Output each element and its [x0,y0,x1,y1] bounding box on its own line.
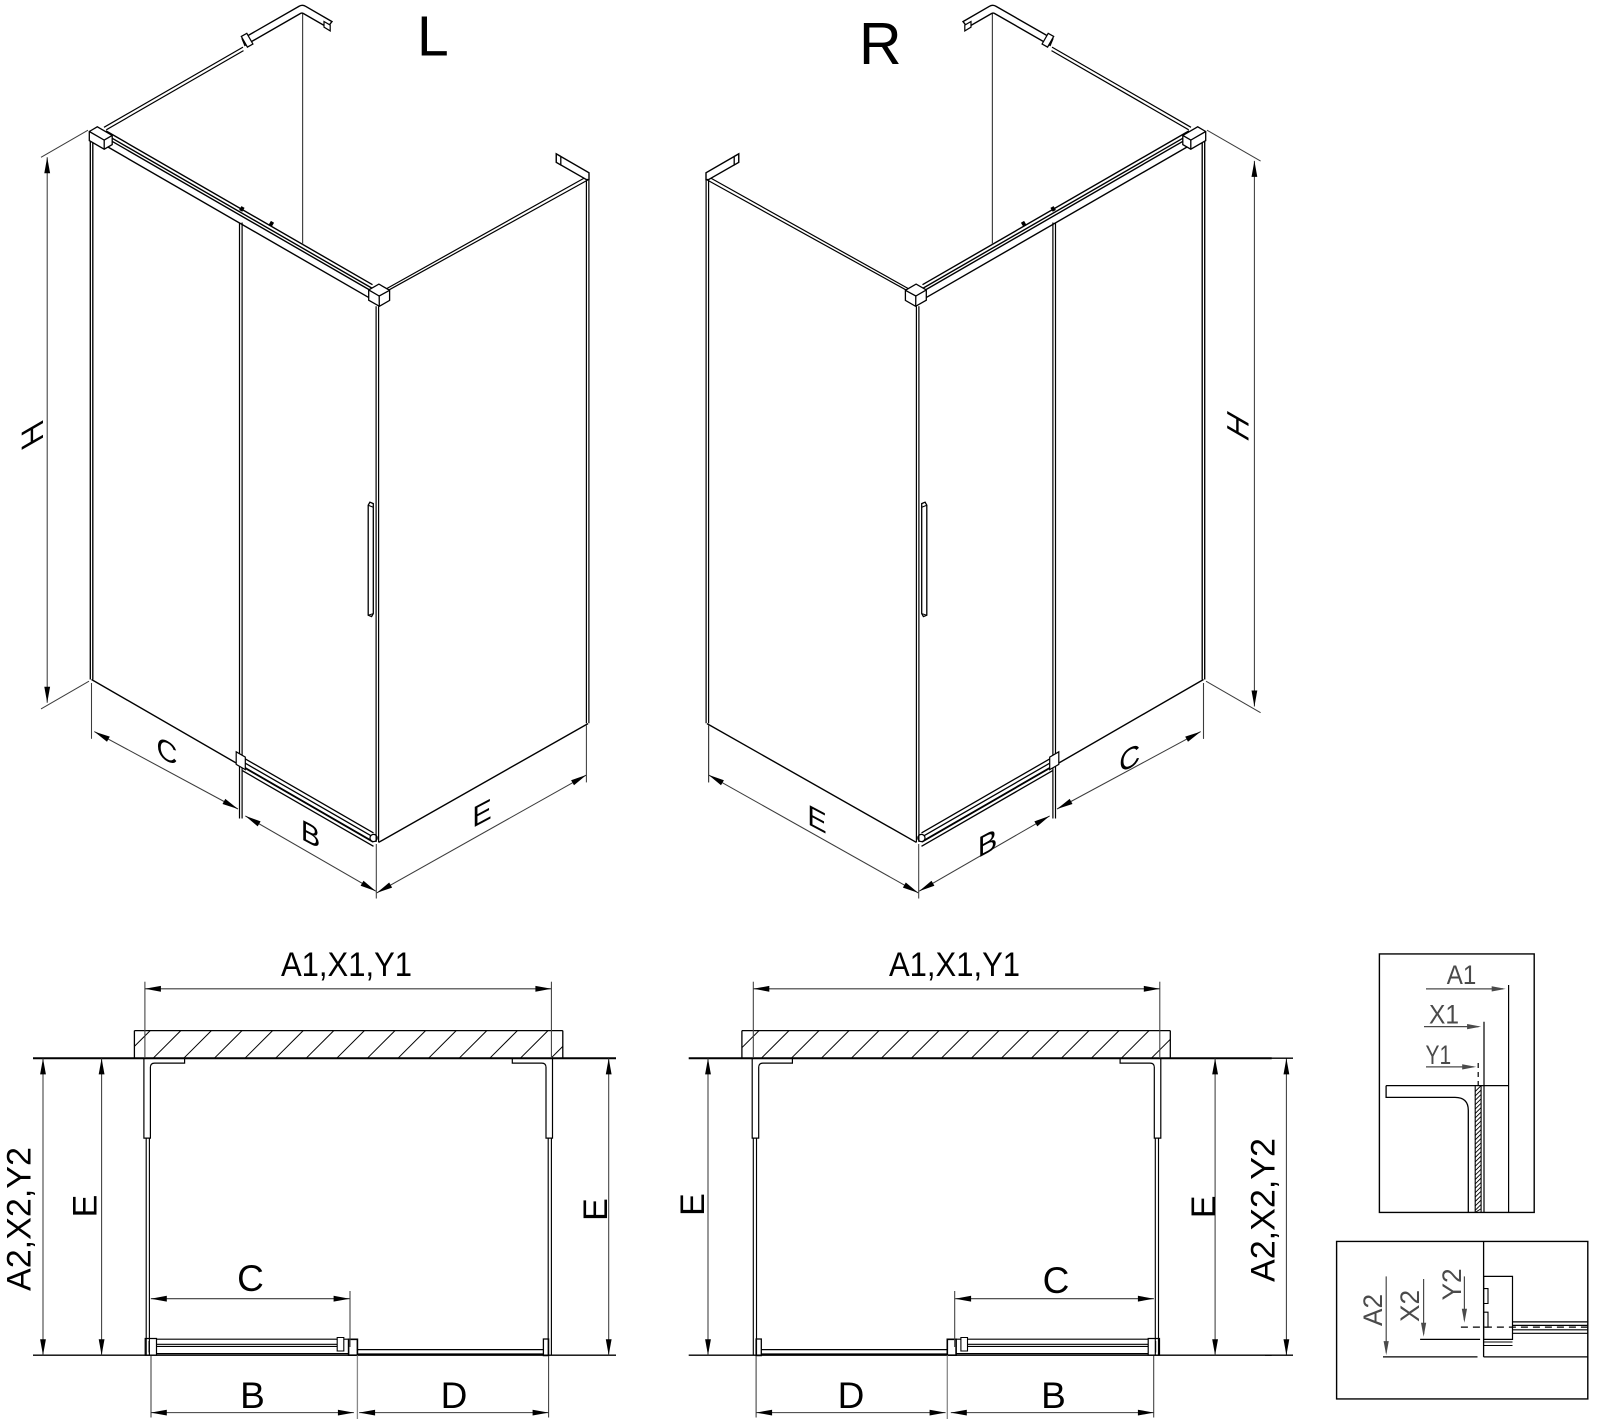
svg-text:R: R [859,11,902,77]
svg-text:E: E [577,1198,615,1221]
svg-text:Y1: Y1 [1426,1040,1452,1070]
svg-text:D: D [441,1375,468,1416]
svg-text:X2: X2 [1395,1290,1425,1322]
svg-text:A2,X2,Y2: A2,X2,Y2 [1245,1138,1283,1282]
svg-text:A1: A1 [1447,960,1477,990]
svg-text:A2: A2 [1358,1294,1388,1326]
svg-text:C: C [237,1258,264,1299]
svg-text:A2,X2,Y2: A2,X2,Y2 [1,1147,39,1291]
svg-text:L: L [417,5,449,69]
svg-text:A1,X1,Y1: A1,X1,Y1 [281,946,412,984]
svg-text:B: B [1041,1375,1066,1416]
svg-text:E: E [674,1193,712,1216]
svg-text:E: E [67,1195,105,1218]
svg-text:X1: X1 [1429,1000,1459,1030]
svg-text:D: D [838,1375,865,1416]
svg-text:C: C [1043,1260,1070,1301]
svg-text:Y2: Y2 [1437,1269,1467,1301]
svg-text:B: B [240,1375,265,1416]
svg-text:E: E [1185,1195,1223,1218]
svg-text:A1,X1,Y1: A1,X1,Y1 [889,946,1020,984]
